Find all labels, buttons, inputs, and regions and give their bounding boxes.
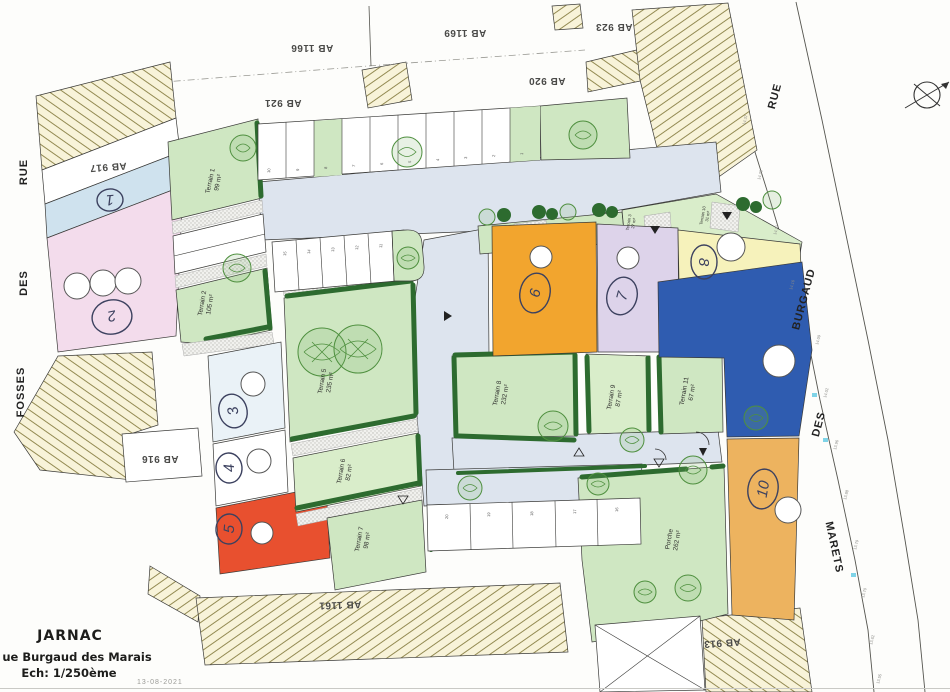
bush-icon bbox=[750, 201, 762, 213]
well-circle bbox=[717, 233, 745, 261]
cadastral-label: AB 920 bbox=[529, 75, 566, 86]
parking-bottom: 20 19 18 17 16 bbox=[427, 498, 641, 551]
hedge-line bbox=[454, 358, 456, 436]
well-circle bbox=[617, 247, 639, 269]
bush-icon bbox=[497, 208, 511, 222]
page-bottom-rule bbox=[0, 688, 950, 689]
site-plan: 10 9 8 7 6 5 4 3 2 1 15 14 13 12 11 20 1… bbox=[0, 0, 950, 692]
elevation-mark: 13.62 bbox=[868, 634, 876, 646]
tree-icon bbox=[620, 428, 644, 452]
hedge-line bbox=[712, 466, 723, 467]
bush-icon bbox=[479, 209, 495, 225]
hedge-line bbox=[648, 358, 649, 430]
tree-icon bbox=[587, 473, 609, 495]
street-name-rue-left: RUE bbox=[18, 159, 30, 185]
parcel-lot10 bbox=[727, 438, 799, 620]
street-name-des-left: DES bbox=[18, 270, 30, 296]
tree-icon bbox=[458, 476, 482, 500]
well-circle bbox=[241, 372, 265, 396]
bush-icon bbox=[606, 206, 618, 218]
well-circle bbox=[251, 522, 273, 544]
well-circle bbox=[115, 268, 141, 294]
hedge-line bbox=[418, 436, 420, 484]
street-name-rue-right: RUE bbox=[766, 82, 784, 110]
cadastral-label: AB 923 bbox=[596, 21, 633, 32]
well-circle bbox=[64, 273, 90, 299]
plan-date-stamp: 13-08-2021 bbox=[137, 679, 183, 686]
plan-scale: Ech: 1/250ème bbox=[14, 666, 124, 680]
compass-icon bbox=[905, 82, 949, 108]
cadastral-label: AB 916 bbox=[142, 453, 179, 464]
bush-icon bbox=[532, 205, 546, 219]
building-bottom bbox=[196, 583, 568, 665]
elevation-mark: 14.28 bbox=[756, 169, 764, 181]
building-top-small bbox=[552, 4, 583, 30]
tree-icon bbox=[397, 247, 419, 269]
bush-icon bbox=[560, 204, 576, 220]
cadastral-label: AB 1161 bbox=[319, 598, 362, 610]
hedge-line bbox=[575, 355, 576, 434]
street-name-marets: MARETS bbox=[823, 520, 846, 574]
parcel-lot6 bbox=[492, 222, 597, 356]
cadastral-label: AB 1166 bbox=[291, 42, 333, 53]
tree-icon bbox=[679, 456, 707, 484]
svg-text:1: 1 bbox=[105, 191, 115, 209]
svg-text:4: 4 bbox=[221, 463, 239, 473]
tree-icon bbox=[675, 575, 701, 601]
well-circle bbox=[763, 345, 795, 377]
scanned-page: 10 9 8 7 6 5 4 3 2 1 15 14 13 12 11 20 1… bbox=[0, 0, 950, 692]
xbraced-court bbox=[595, 616, 705, 692]
survey-point bbox=[851, 573, 856, 577]
tree-icon bbox=[634, 581, 656, 603]
well-circle bbox=[90, 270, 116, 296]
elevation-mark: 13.55 bbox=[875, 673, 883, 685]
tree-icon bbox=[744, 406, 768, 430]
tree-icon bbox=[230, 135, 256, 161]
cadastral-label: AB 921 bbox=[265, 97, 302, 108]
bush-icon bbox=[763, 191, 781, 209]
elevation-mark: 13.70 bbox=[860, 587, 868, 599]
tree-icon bbox=[392, 137, 422, 167]
tree-icon bbox=[334, 325, 382, 373]
svg-text:8: 8 bbox=[695, 258, 712, 267]
elevation-mark: 14.02 bbox=[822, 387, 830, 399]
parking-green-stall bbox=[510, 106, 540, 162]
elevation-mark: 13.96 bbox=[832, 439, 840, 451]
hedge-line bbox=[659, 357, 661, 432]
tree-icon bbox=[223, 254, 251, 282]
elevation-mark: 13.79 bbox=[852, 539, 860, 551]
street-name-fosses: FOSSES bbox=[15, 367, 27, 418]
parking-strip bbox=[427, 498, 641, 551]
plan-title-street: ue Burgaud des Marais bbox=[2, 650, 152, 664]
well-circle bbox=[530, 246, 552, 268]
bush-icon bbox=[736, 197, 750, 211]
hedge-line bbox=[413, 285, 416, 413]
hedge-line bbox=[587, 357, 589, 431]
cadastral-label: AB 1169 bbox=[444, 27, 486, 38]
well-circle bbox=[247, 449, 271, 473]
building-bottom-stub bbox=[148, 566, 200, 622]
footpath bbox=[710, 202, 740, 232]
elevation-mark: 13.88 bbox=[842, 489, 850, 501]
well-circle bbox=[775, 497, 801, 523]
building-top-center bbox=[362, 62, 412, 108]
building-bottom-right bbox=[702, 608, 812, 692]
survey-point bbox=[823, 438, 828, 442]
elevation-mark: 14.09 bbox=[814, 334, 822, 346]
bush-icon bbox=[546, 208, 558, 220]
tree-icon bbox=[569, 121, 597, 149]
bush-icon bbox=[592, 203, 606, 217]
plan-title-city: JARNAC bbox=[30, 628, 110, 644]
survey-point bbox=[812, 393, 817, 397]
tree-icon bbox=[538, 411, 568, 441]
